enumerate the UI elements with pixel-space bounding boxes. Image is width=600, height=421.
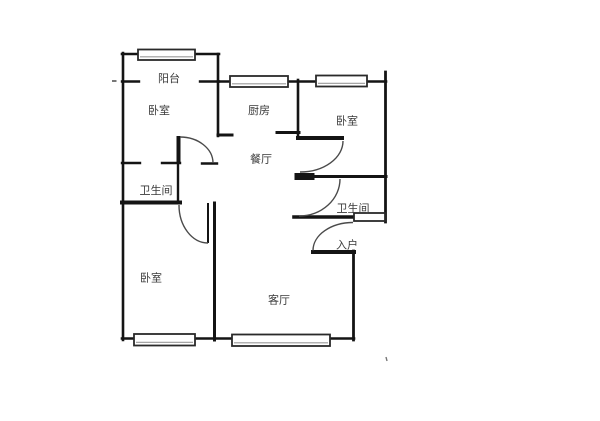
- room-label-balcony: 阳台: [158, 71, 180, 85]
- room-label-kitchen: 厨房: [248, 104, 270, 117]
- room-label-entry: 入户: [336, 238, 358, 252]
- room-label-bathroom-1: 卫生间: [140, 183, 173, 197]
- door-swing-arc: [180, 137, 213, 163]
- window-symbol: [134, 334, 195, 346]
- floorplan-svg: 阳台卧室厨房卧室餐厅卫生间卫生间入户卧室客厅: [0, 0, 600, 421]
- room-label-bedroom-2: 卧室: [336, 114, 358, 128]
- room-label-bedroom-1: 卧室: [148, 103, 170, 117]
- door-swing-arc: [300, 141, 343, 172]
- room-label-bedroom-3: 卧室: [140, 271, 162, 285]
- window-symbol: [138, 50, 195, 61]
- room-label-bathroom-2: 卫生间: [337, 201, 370, 215]
- window-symbol: [232, 335, 330, 347]
- door-swing-arc: [299, 179, 340, 216]
- window-symbol: [230, 76, 288, 87]
- room-label-dining-room: 餐厅: [250, 152, 272, 166]
- window-symbol: [316, 76, 367, 87]
- door-swing-arc: [179, 205, 208, 243]
- floorplan-canvas: 阳台卧室厨房卧室餐厅卫生间卫生间入户卧室客厅: [0, 0, 600, 421]
- room-label-living-room: 客厅: [268, 293, 290, 307]
- stray-mark: [386, 357, 387, 361]
